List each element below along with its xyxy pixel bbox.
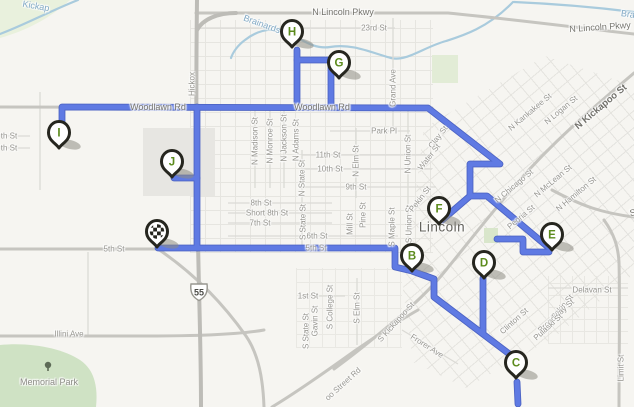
marker-letter: B xyxy=(408,251,416,263)
marker-letter: G xyxy=(335,58,344,70)
marker-letter: F xyxy=(435,204,442,216)
marker-letter: I xyxy=(57,128,60,140)
marker-letter: E xyxy=(548,230,556,242)
map-marker-J[interactable]: J xyxy=(162,151,195,181)
map-marker-G[interactable]: G xyxy=(329,52,362,82)
map-marker-start-checkered-flag[interactable] xyxy=(147,221,180,251)
marker-letter: C xyxy=(512,358,520,370)
map-marker-B[interactable]: B xyxy=(402,245,435,275)
map-marker-E[interactable]: E xyxy=(542,224,575,254)
map-marker-H[interactable]: H xyxy=(282,21,315,51)
map-marker-D[interactable]: D xyxy=(474,252,507,282)
map-marker-F[interactable]: F xyxy=(429,198,462,228)
map-marker-C[interactable]: C xyxy=(506,352,539,382)
marker-letter: D xyxy=(480,258,488,270)
map-marker-I[interactable]: I xyxy=(49,122,82,152)
marker-letter: J xyxy=(169,157,175,169)
marker-letter: H xyxy=(288,27,296,39)
map-markers-layer: BCDEFGHIJ xyxy=(0,0,634,407)
map-canvas[interactable]: 55 N Lincoln PkwyN Lincoln Pkwy23rd StWo… xyxy=(0,0,634,407)
